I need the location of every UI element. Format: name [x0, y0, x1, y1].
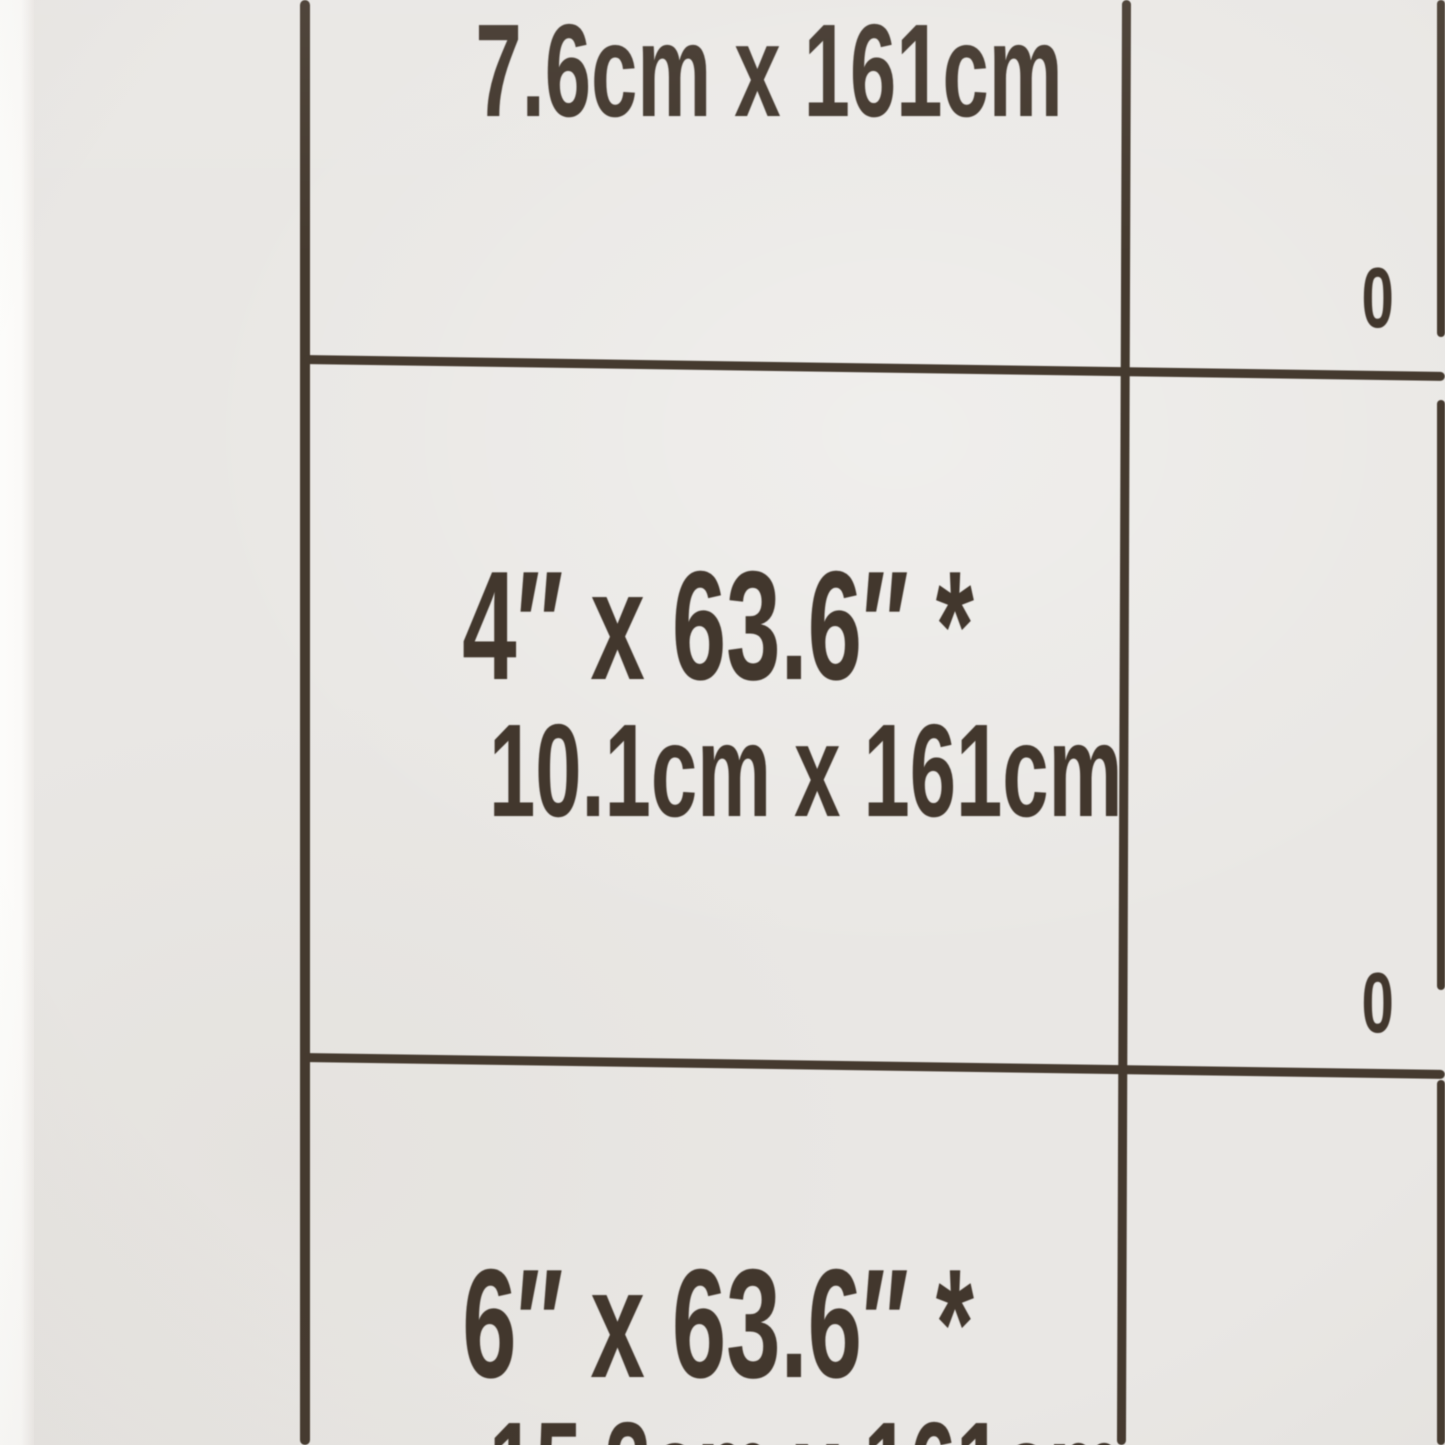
- size-cell-cm-row3: 15.2cm x 161cm: [303, 1390, 1133, 1445]
- size-chart-photo: 7.6cm x 161cm 0 4″ x 63.6″ * 10.1cm x 16…: [0, 0, 1445, 1445]
- col2-value-row2: 0: [1330, 953, 1425, 1055]
- row-divider-2: [303, 1053, 1445, 1079]
- size-cell-cm-row2: 10.1cm x 161cm: [303, 692, 1133, 850]
- row-divider-1: [303, 355, 1445, 381]
- table-border-right-middle-segment: [1437, 400, 1445, 990]
- table-border-right-bottom-segment: [1437, 1080, 1445, 1445]
- size-cell-cm-row1: 7.6cm x 161cm: [303, 0, 1133, 150]
- package-edge: [0, 0, 34, 1445]
- table-border-right-top-segment: [1437, 0, 1445, 337]
- col2-value-row1: 0: [1330, 248, 1425, 350]
